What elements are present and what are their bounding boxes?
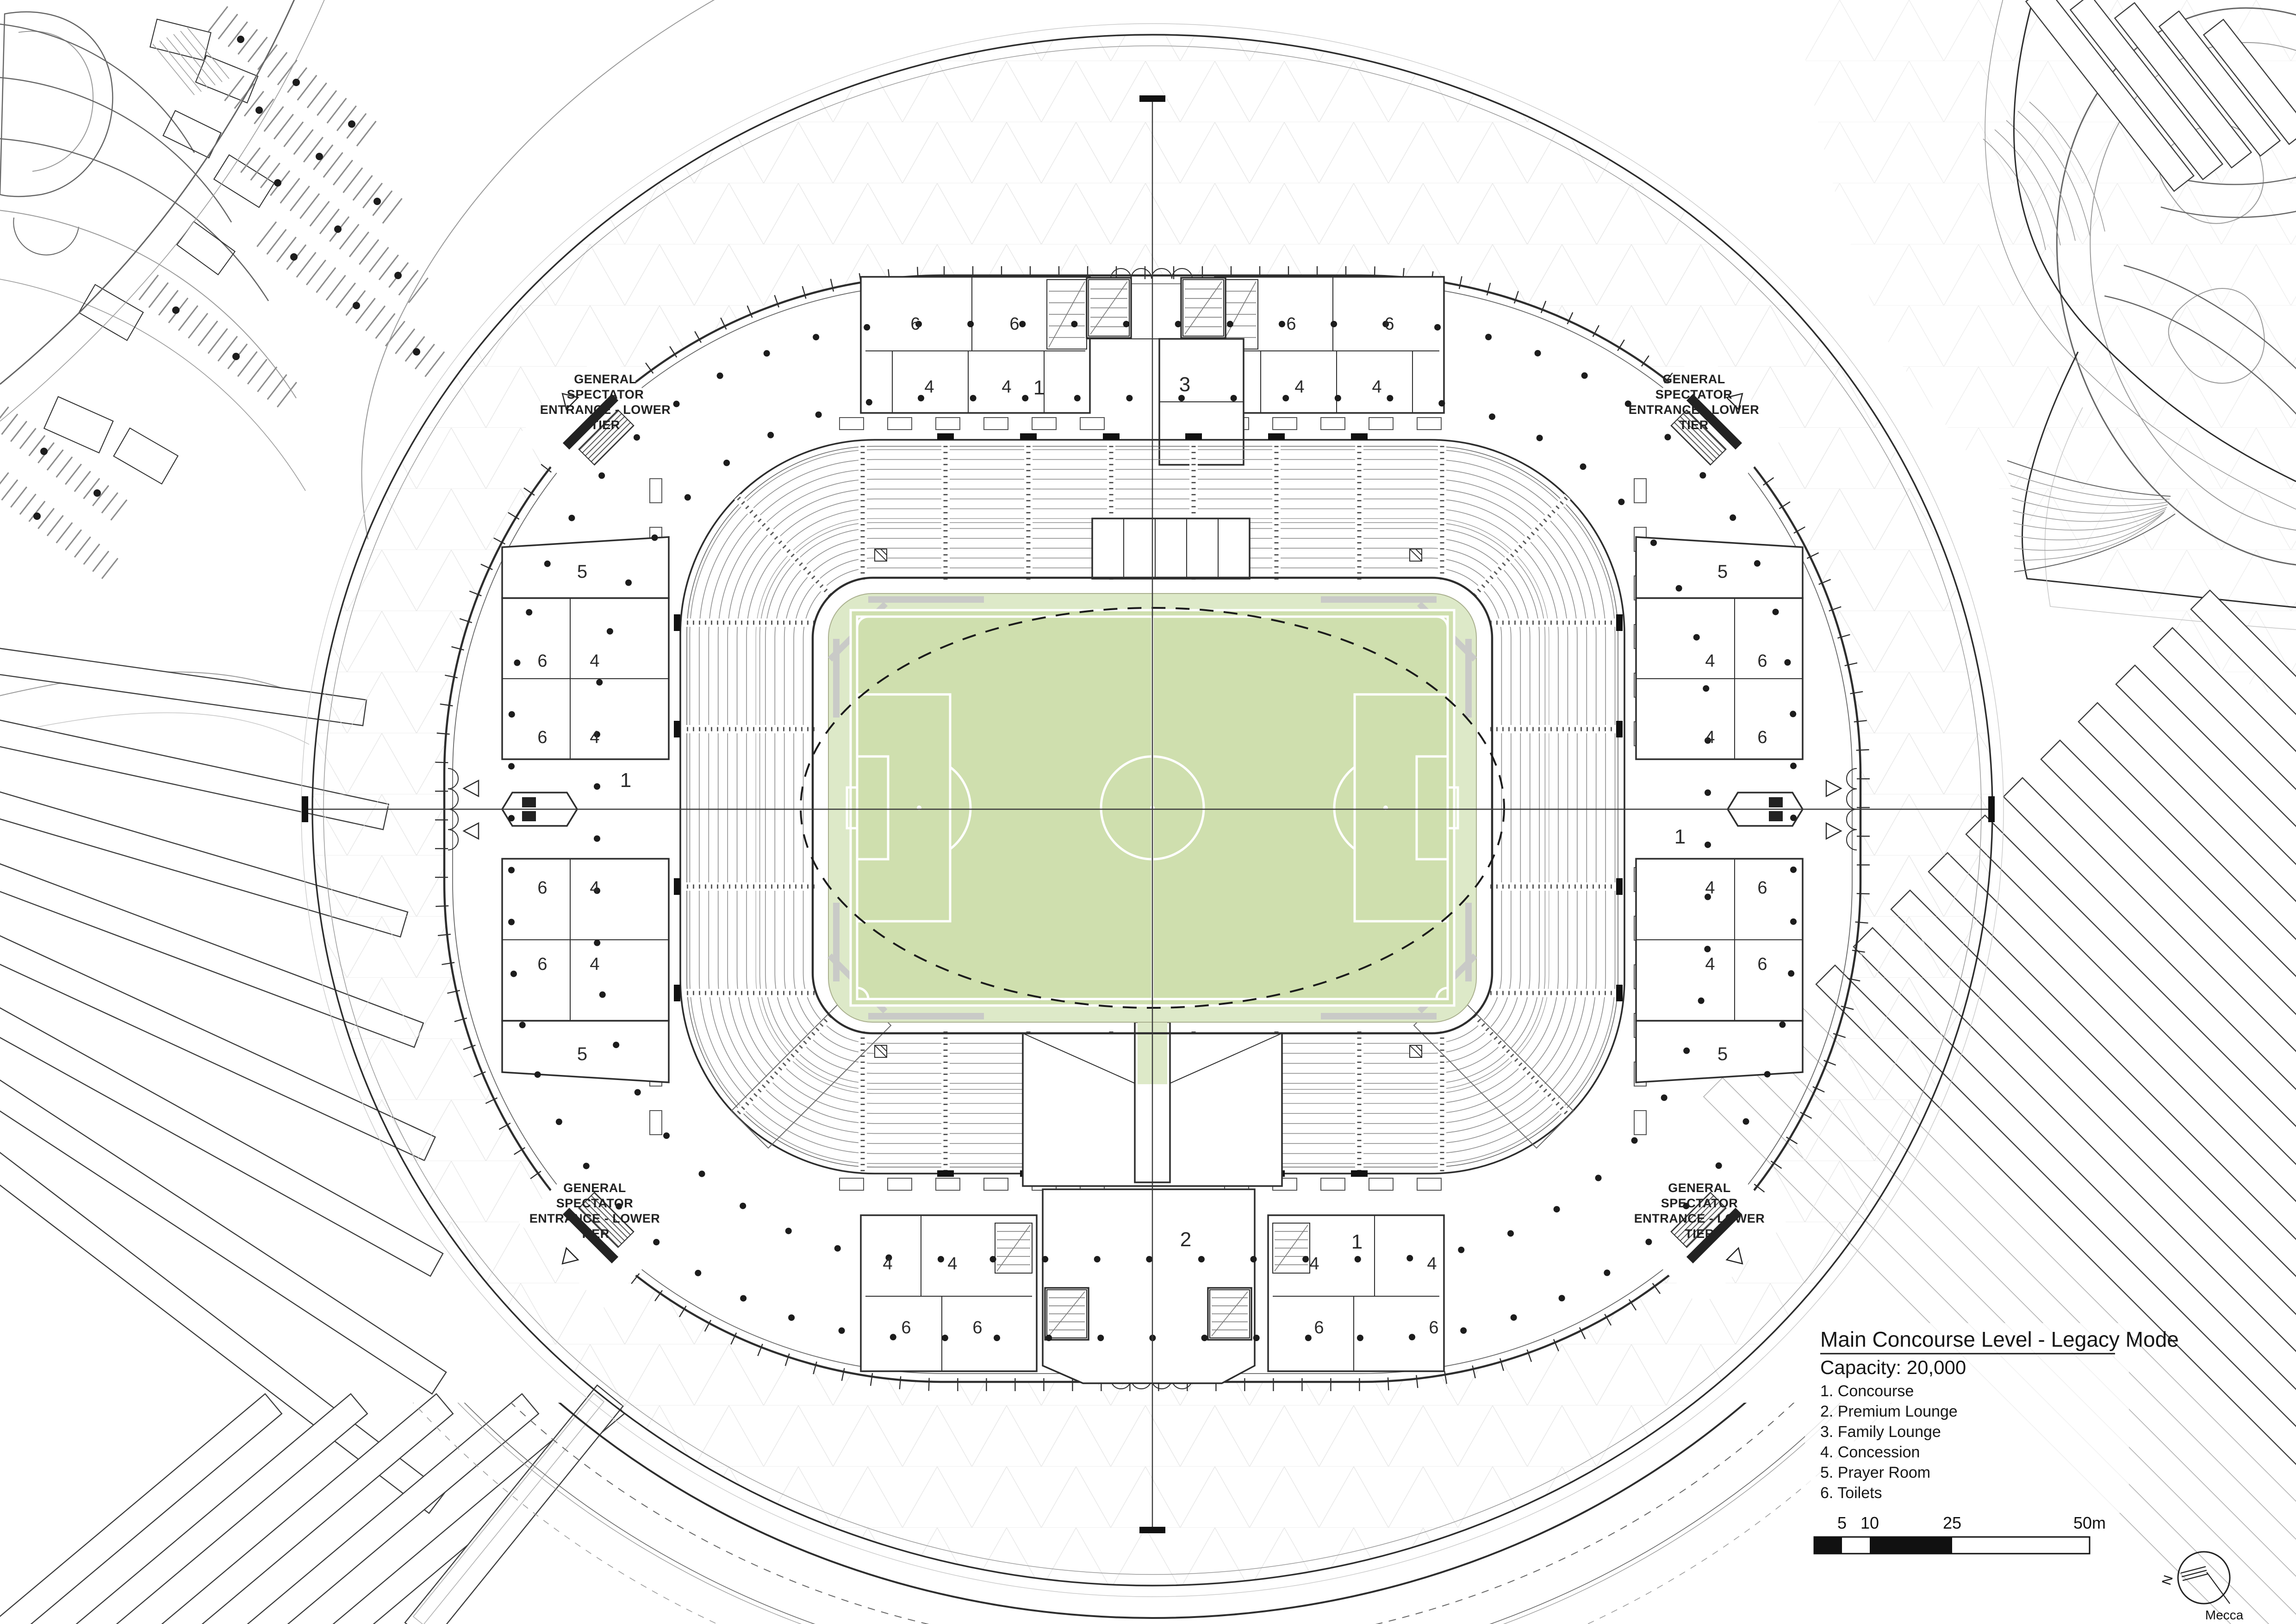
room-label: 4 xyxy=(924,377,934,397)
room-label: 6 xyxy=(1009,314,1019,334)
block-bottom-center xyxy=(1043,1189,1255,1383)
room-label: 1 xyxy=(620,769,631,792)
room-label: 1 xyxy=(1033,376,1045,399)
north-letter: N xyxy=(2159,1574,2176,1587)
room-label: 6 xyxy=(1286,314,1296,334)
room-label: 5 xyxy=(1717,1044,1728,1064)
scale-tick-5: 5 xyxy=(1837,1513,1847,1532)
capacity-label: Capacity: 20,000 xyxy=(1820,1356,1966,1378)
room-label: 4 xyxy=(1427,1254,1437,1274)
title-block: Main Concourse Level - Legacy Mode Capac… xyxy=(1805,1323,2179,1513)
scale-bar: 5 10 25 50m xyxy=(1814,1513,2106,1554)
block-top-right xyxy=(1215,277,1444,413)
scale-tick-25: 25 xyxy=(1943,1513,1961,1532)
room-label: 4 xyxy=(1309,1254,1319,1274)
media-box xyxy=(1092,518,1250,579)
legend-item-1: 1. Concourse xyxy=(1820,1382,1914,1400)
room-label: 6 xyxy=(1384,314,1394,334)
room-label: 3 xyxy=(1179,373,1190,396)
block-bottom-left xyxy=(861,1215,1037,1371)
room-label: 4 xyxy=(590,878,599,898)
room-label: 6 xyxy=(1314,1318,1324,1337)
stadium-floor-plan: 6644136644564641646455464614646544662144… xyxy=(0,0,2296,1624)
room-label: 4 xyxy=(1372,377,1381,397)
room-label: 4 xyxy=(590,728,599,747)
room-label: 6 xyxy=(1757,728,1767,747)
room-label: 1 xyxy=(1351,1230,1363,1253)
room-label: 5 xyxy=(1717,562,1728,582)
room-label: 6 xyxy=(910,314,920,334)
room-label: 4 xyxy=(1294,377,1304,397)
room-label: 6 xyxy=(1429,1318,1438,1337)
legend-item-2: 2. Premium Lounge xyxy=(1820,1403,1958,1420)
room-label: 4 xyxy=(947,1254,957,1274)
room-label: 4 xyxy=(1705,955,1715,974)
room-label: 4 xyxy=(590,955,599,974)
room-label: 4 xyxy=(1002,377,1011,397)
room-label: 4 xyxy=(883,1254,892,1274)
room-label: 2 xyxy=(1180,1228,1191,1251)
room-label: 6 xyxy=(537,878,547,898)
room-label: 4 xyxy=(590,651,599,671)
scale-tick-50m: 50m xyxy=(2073,1513,2106,1532)
room-label: 6 xyxy=(537,651,547,671)
room-label: 5 xyxy=(577,1044,587,1064)
room-label: 4 xyxy=(1705,878,1715,898)
legend-item-6: 6. Toilets xyxy=(1820,1484,1882,1502)
room-label: 6 xyxy=(1757,651,1767,671)
drawing-title: Main Concourse Level - Legacy Mode xyxy=(1820,1327,2179,1351)
room-label: 6 xyxy=(1757,955,1767,974)
scale-tick-10: 10 xyxy=(1860,1513,1879,1532)
room-label: 4 xyxy=(1705,651,1715,671)
room-label: 6 xyxy=(972,1318,982,1337)
legend-item-5: 5. Prayer Room xyxy=(1820,1464,1930,1481)
block-top-left xyxy=(861,277,1090,413)
terraced-building xyxy=(0,12,305,491)
room-label: 6 xyxy=(537,728,547,747)
parking-lot xyxy=(0,19,440,569)
legend-item-3: 3. Family Lounge xyxy=(1820,1423,1941,1441)
room-label: 6 xyxy=(537,955,547,974)
legend-item-4: 4. Concession xyxy=(1820,1443,1920,1461)
mecca-label: Mecca xyxy=(2205,1608,2244,1622)
room-label: 1 xyxy=(1674,825,1686,848)
room-label: 4 xyxy=(1705,728,1715,747)
room-label: 6 xyxy=(1757,878,1767,898)
room-label: 5 xyxy=(577,562,587,582)
room-label: 6 xyxy=(901,1318,911,1337)
